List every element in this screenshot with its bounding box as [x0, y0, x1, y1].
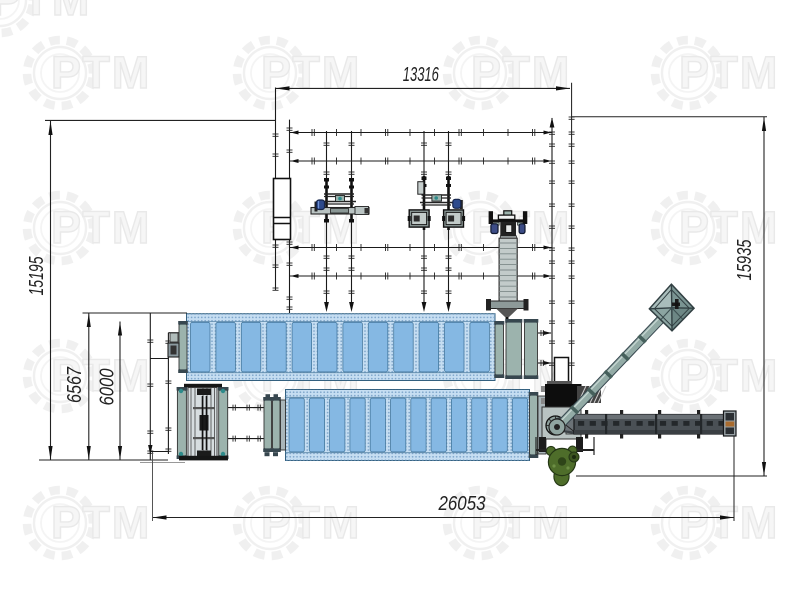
svg-text:6567: 6567 [64, 366, 86, 403]
svg-text:13316: 13316 [403, 64, 440, 86]
svg-text:26053: 26053 [438, 493, 486, 515]
svg-text:РТМ: РТМ [0, 0, 91, 25]
svg-text:6000: 6000 [97, 369, 119, 406]
svg-text:15935: 15935 [734, 239, 756, 281]
svg-text:15195: 15195 [26, 256, 48, 296]
